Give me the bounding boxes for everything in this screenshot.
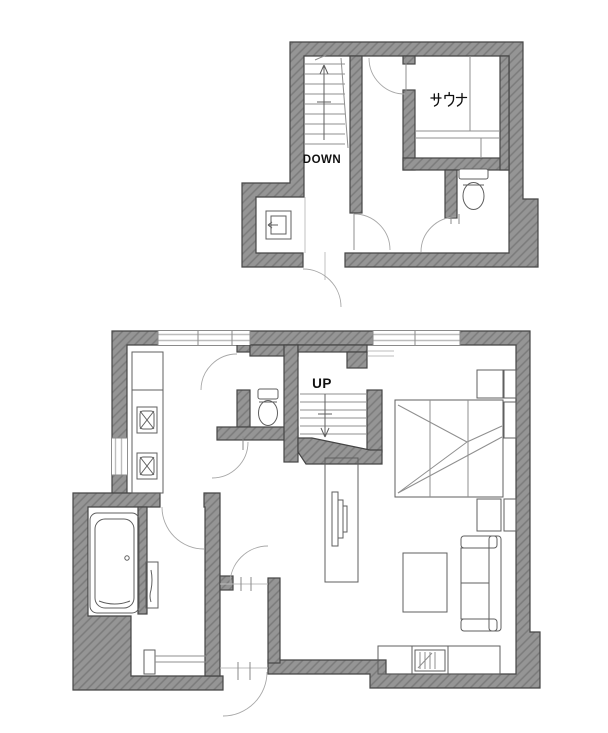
stairs-down (305, 52, 348, 148)
washroom-right-wall (204, 493, 220, 676)
floor-plan-canvas: DOWN (0, 0, 608, 733)
stove-burner (137, 407, 157, 433)
table (403, 553, 447, 612)
upper-floor-plan: DOWN (242, 42, 538, 307)
sauna-room (415, 56, 500, 158)
lower-floor-plan: UP (73, 330, 540, 716)
stairwell-top-wall (298, 345, 367, 352)
stairs-up-label: UP (312, 376, 332, 391)
stairwell-right-wall (367, 390, 382, 452)
toilet-icon-upper (459, 169, 488, 210)
washroom-door (162, 507, 204, 549)
sauna-right-wall (500, 56, 509, 170)
stair-direction-arrow (317, 65, 331, 140)
upper-entry-door (303, 252, 341, 307)
stairwell-notch-wall (347, 352, 367, 368)
washer-space (144, 650, 155, 674)
vestibule-stub-wall (220, 576, 233, 590)
washbasin-unit (266, 211, 291, 239)
vanity-unit (146, 562, 158, 608)
bedside-cabinets (477, 370, 516, 531)
sink-unit (137, 453, 157, 479)
stairs-down-label: DOWN (303, 154, 341, 166)
sofa (461, 536, 501, 631)
sauna-label (431, 93, 467, 107)
kitchen-door (201, 354, 237, 390)
sauna-door (369, 58, 406, 94)
bathroom (90, 513, 139, 613)
kitchen-wall-top (237, 345, 250, 352)
bed (395, 400, 503, 497)
upper-hall-partition-wall (350, 56, 362, 213)
sauna-bottom-wall (403, 158, 509, 170)
vestibule-right-wall (268, 578, 280, 663)
stair-direction-arrow (318, 394, 332, 437)
upper-toilet-door (421, 214, 459, 252)
bathtub-icon (90, 513, 139, 613)
fridge (132, 352, 163, 390)
floor-plan-page: DOWN (0, 0, 608, 733)
entry-door (220, 662, 268, 716)
kitchen-wall-bottom (237, 390, 250, 427)
upper-hall-door (354, 214, 390, 250)
counter-with-sink (378, 646, 500, 674)
kitchen-area (132, 352, 163, 493)
tv-board (325, 458, 358, 582)
toilet-icon-lower (258, 389, 278, 426)
upper-toilet-wall (445, 170, 457, 218)
washroom (144, 562, 206, 674)
stairwell-left-wall (284, 345, 298, 462)
corridor-door (212, 436, 248, 478)
sauna-left-wall-top (403, 56, 415, 64)
window-top-left (158, 330, 250, 345)
window-left (111, 438, 127, 475)
vestibule-inner-door (220, 546, 268, 591)
window-top-right (373, 330, 460, 345)
